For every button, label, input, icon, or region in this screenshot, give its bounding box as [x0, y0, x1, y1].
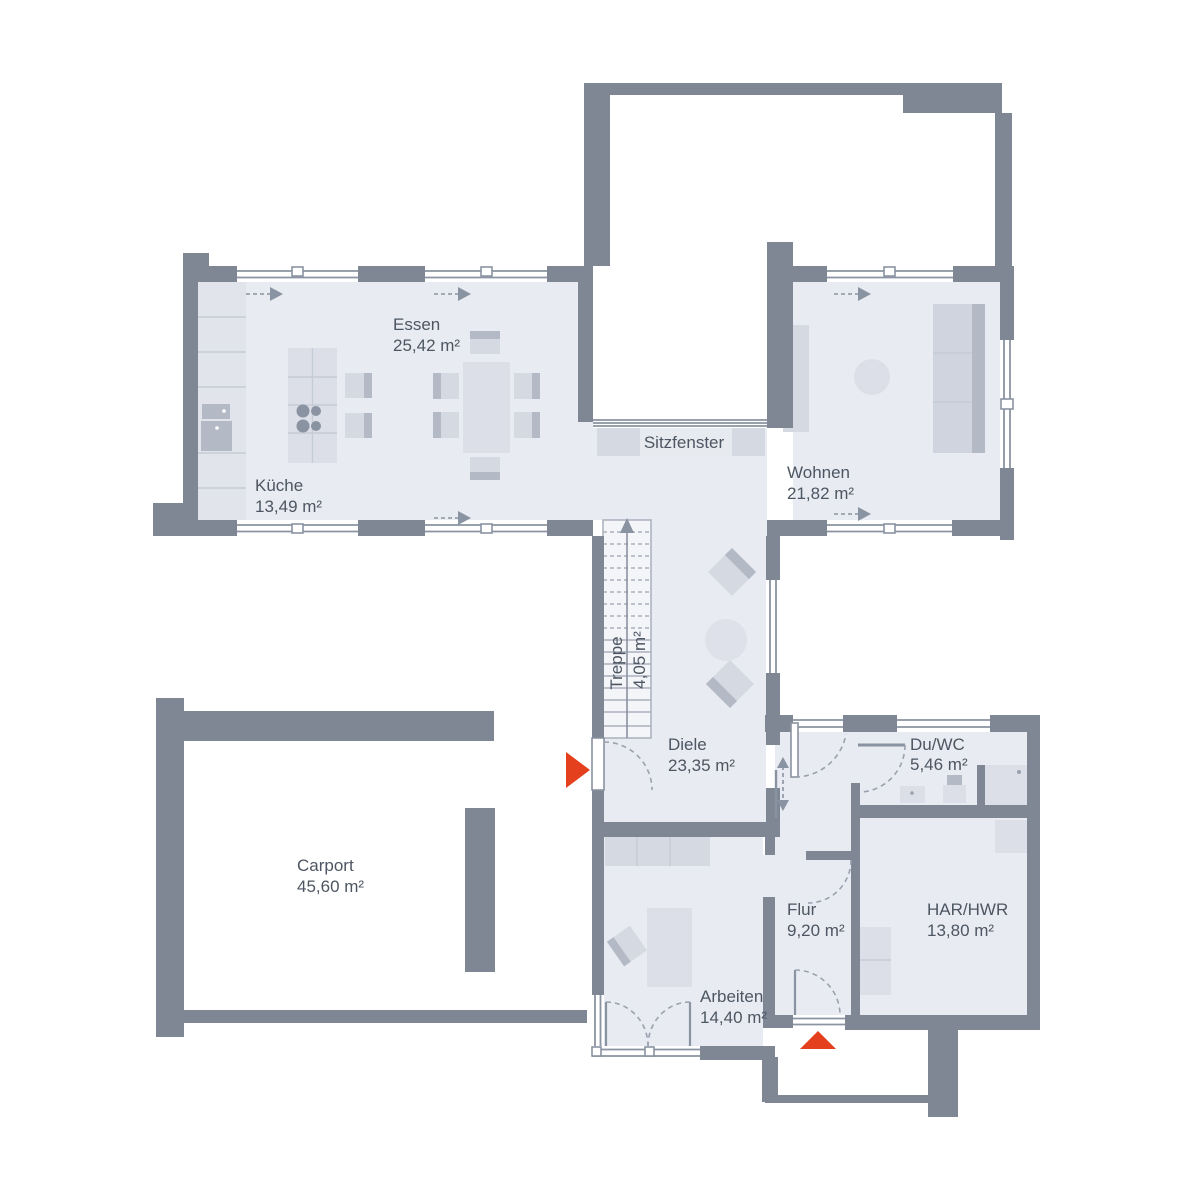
window-living-east — [1000, 340, 1014, 468]
window-hall-east — [766, 580, 780, 673]
room-area-har-hwr: 13,80 m² — [927, 921, 994, 940]
label-sitzfenster: Sitzfenster — [644, 433, 725, 452]
room-label-flur: Flur — [787, 900, 817, 919]
room-label-essen: Essen — [393, 315, 440, 334]
room-label-wohnen: Wohnen — [787, 463, 850, 482]
room-area-diele: 23,35 m² — [668, 756, 735, 775]
window-kitchen-north-2 — [425, 266, 547, 282]
room-area-kueche: 13,49 m² — [255, 497, 322, 516]
room-label-har-hwr: HAR/HWR — [927, 900, 1008, 919]
staircase — [603, 518, 651, 738]
room-label-treppe: Treppe — [607, 636, 626, 689]
room-label-diele: Diele — [668, 735, 707, 754]
entrance-arrow-west-icon — [566, 752, 590, 788]
room-label-carport: Carport — [297, 856, 354, 875]
room-label-kueche: Küche — [255, 476, 303, 495]
room-area-carport: 45,60 m² — [297, 877, 364, 896]
window-sitzfenster — [593, 417, 767, 428]
room-label-arbeiten: Arbeiten — [700, 987, 763, 1006]
kitchen-counter — [198, 282, 246, 530]
window-kitchen-north-1 — [237, 266, 358, 282]
window-kitchen-south-2 — [425, 520, 547, 536]
window-bath-1 — [793, 715, 843, 732]
entrance-arrow-south-icon — [800, 1031, 836, 1049]
window-kitchen-south-1 — [237, 520, 358, 536]
kitchen-island — [288, 348, 337, 463]
door-office-south — [592, 1046, 700, 1060]
room-area-du-wc: 5,46 m² — [910, 755, 968, 774]
window-living-north — [827, 266, 953, 282]
room-area-flur: 9,20 m² — [787, 921, 845, 940]
door-flur-south — [793, 1015, 845, 1028]
room-area-treppe: 4,05 m² — [630, 631, 649, 689]
window-living-south — [827, 520, 952, 536]
room-area-essen: 25,42 m² — [393, 336, 460, 355]
window-bath-2 — [897, 715, 990, 732]
room-area-arbeiten: 14,40 m² — [700, 1008, 767, 1027]
floor-plan-canvas: Essen 25,42 m² Küche 13,49 m² Wohnen 21,… — [0, 0, 1200, 1200]
room-area-wohnen: 21,82 m² — [787, 484, 854, 503]
floor-plan: Essen 25,42 m² Küche 13,49 m² Wohnen 21,… — [0, 0, 1200, 1200]
room-label-du-wc: Du/WC — [910, 735, 965, 754]
